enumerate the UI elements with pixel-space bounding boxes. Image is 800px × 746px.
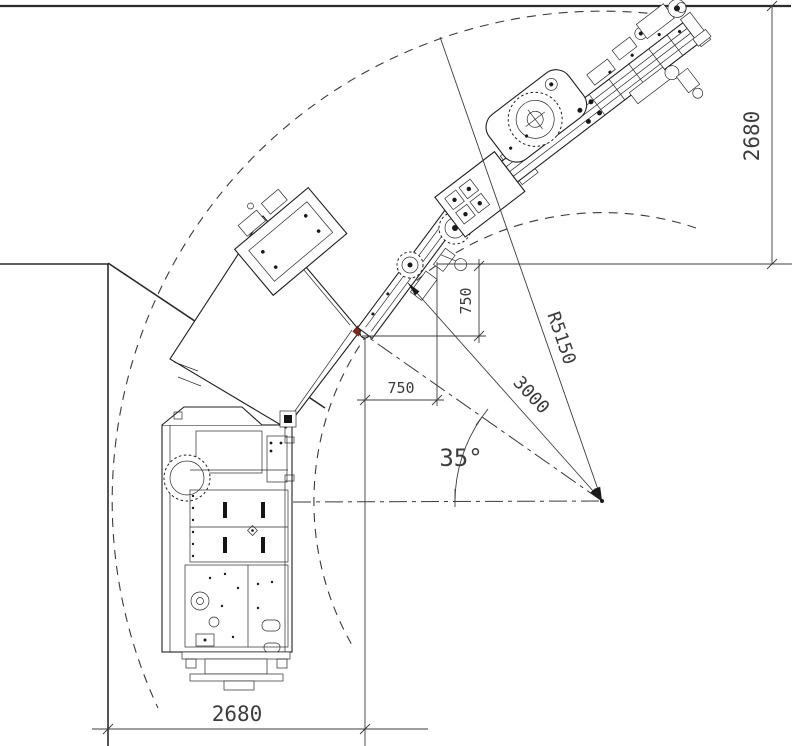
dim-label-articulation-angle: 35° — [439, 444, 482, 472]
rear-axle-centerline — [293, 501, 602, 502]
technical-drawing: 2680 750 750 R5150 3000 35° — [0, 0, 800, 746]
dim-label-offset-vertical: 750 — [457, 287, 475, 314]
dim-label-right-width: 2680 — [740, 111, 764, 162]
undercarriage-plate — [182, 652, 290, 659]
dimension-horizontal-750: 750 — [357, 379, 444, 405]
dimension-bottom-2680: 2680 — [92, 702, 428, 734]
inner-turning-arc — [314, 213, 696, 645]
turning-pivot-point — [600, 499, 604, 503]
feed-beam-assembly — [416, 0, 736, 262]
dimension-right-2680: 2680 — [740, 1, 777, 269]
rear-carrier — [162, 407, 294, 690]
dim-label-turning-radius: R5150 — [542, 309, 579, 367]
dimension-angle-35: 35° — [439, 409, 604, 507]
drawing-sheet: 2680 750 750 R5150 3000 35° — [0, 0, 800, 746]
dim-label-offset-horizontal: 750 — [387, 379, 414, 397]
dimension-vertical-750: 750 — [457, 259, 484, 343]
dim-label-pivot-distance: 3000 — [509, 372, 554, 418]
dim-label-bottom-width: 2680 — [212, 702, 263, 726]
tunnel-walls — [0, 6, 791, 746]
